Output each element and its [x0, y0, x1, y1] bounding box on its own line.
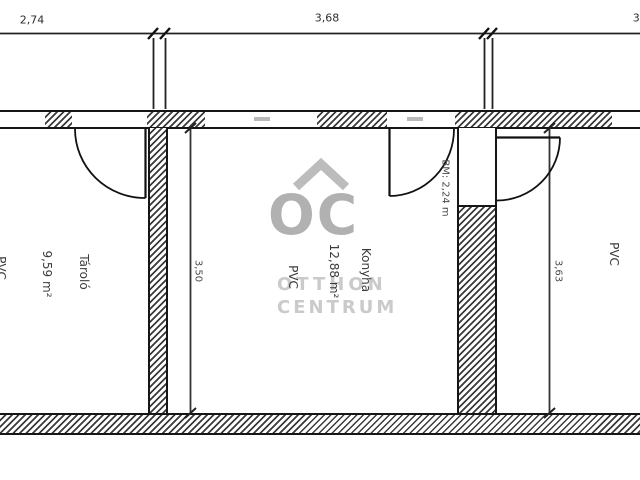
dimension-label-right-partial: 3,	[633, 12, 640, 25]
floor-label-konyha: PVC	[286, 265, 300, 289]
room-area-konyha: 12,88 m²	[327, 244, 341, 299]
dimension-label-left: 2,74	[20, 14, 45, 27]
floor-label-tarolo: PVC	[0, 256, 8, 280]
dimension-label-right-height: 3,63	[553, 260, 564, 282]
room-area-tarolo: 9,59 m²	[40, 250, 54, 297]
dimension-label-konyha-height: 3,50	[193, 260, 204, 282]
floor-plan: OC OTTHON CENTRUM 2,74 3,68	[0, 0, 640, 480]
plan-linework	[0, 0, 640, 480]
dimension-label-middle: 3,68	[315, 12, 340, 25]
room-label-tarolo: Tároló	[77, 254, 91, 289]
beam-height-note-konyha: BM: 2,24 m	[440, 159, 451, 216]
room-label-konyha: Konyha	[359, 248, 373, 292]
floor-label-right-room: PVC	[607, 242, 621, 266]
